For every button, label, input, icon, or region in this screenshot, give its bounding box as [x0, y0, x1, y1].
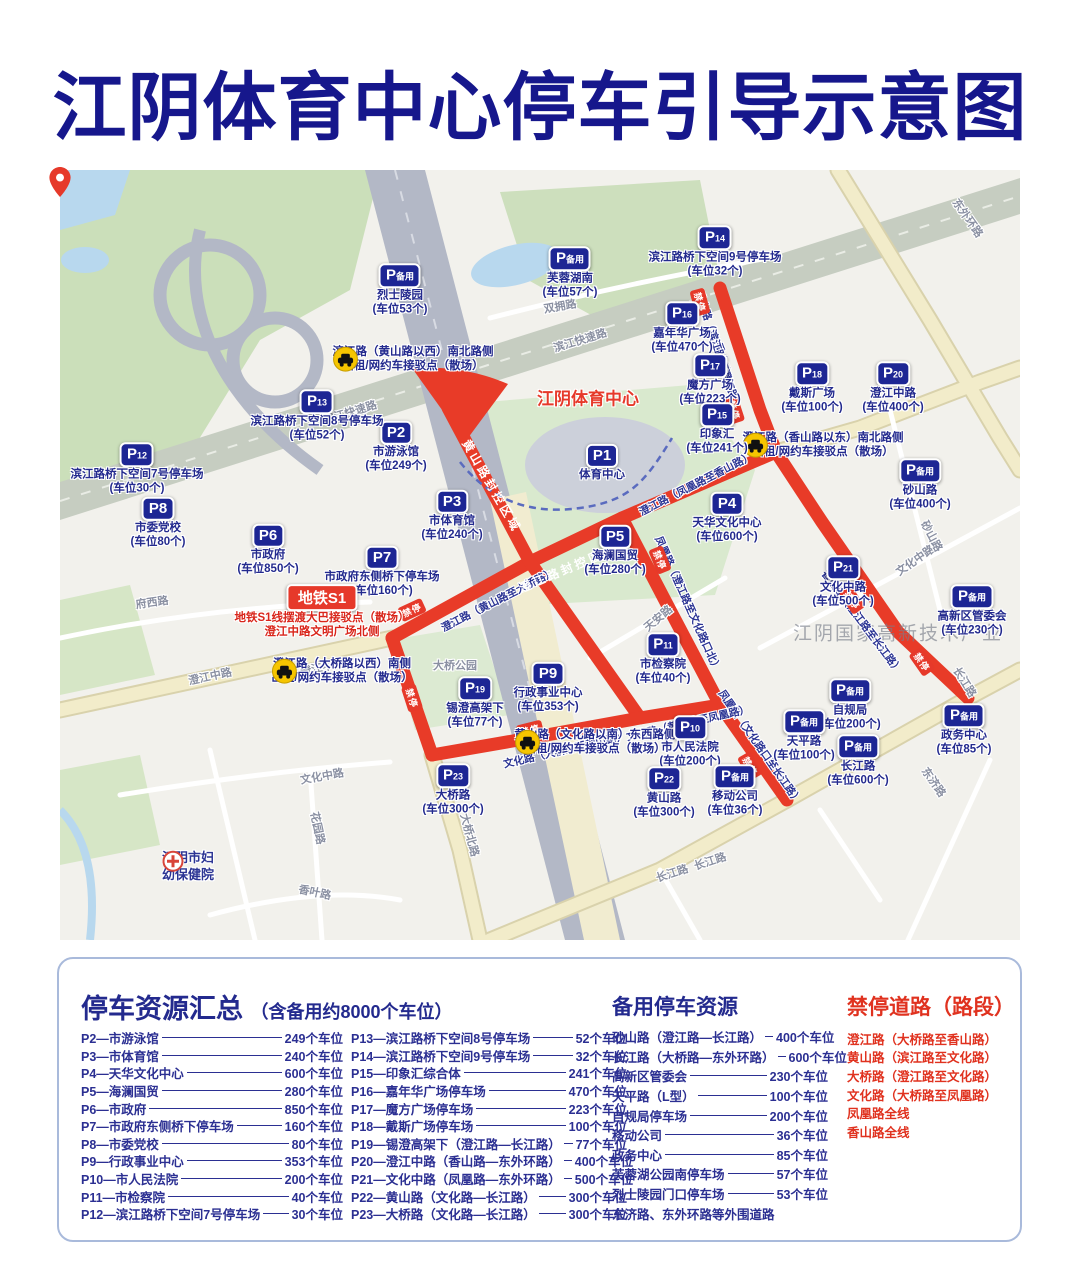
legend-row-label: P18—戴斯广场停车场: [351, 1116, 473, 1135]
parking-capacity: (车位249个): [365, 460, 426, 473]
legend-row-value: 600个车位: [789, 1047, 847, 1066]
p-glyph: P: [307, 392, 317, 409]
leader-line: [263, 1213, 288, 1214]
parking-badge: P备用: [379, 263, 421, 288]
legend-panel: 停车资源汇总 （含备用约8000个车位） 备用停车资源 禁停道路（路段） P2—…: [57, 957, 1022, 1242]
parking-marker-P4: P4天华文化中心(车位600个): [693, 492, 762, 544]
parking-badge: P备用: [943, 703, 985, 728]
taxi-icon: [271, 658, 297, 684]
parking-badge: P22: [647, 766, 681, 791]
parking-marker-P备用-烈士陵园: P备用烈士陵园(车位53个): [373, 263, 428, 316]
legend-row-label: P8—市委党校: [81, 1134, 159, 1153]
parking-badge: P14: [698, 225, 732, 250]
legend-row-value: 280个车位: [285, 1081, 343, 1100]
p-glyph: P: [950, 706, 960, 723]
p-glyph: P: [721, 767, 731, 784]
leader-line: [728, 1193, 774, 1194]
legend-row-label: 天平路（L型）: [612, 1086, 695, 1105]
p-glyph: P: [700, 356, 710, 373]
legend-row-value: 40个车位: [292, 1187, 343, 1206]
parking-name: 芙蓉湖南: [547, 272, 593, 285]
metro-s1-badge: 地铁S1: [287, 584, 357, 611]
parking-marker-P1: P1体育中心: [579, 444, 625, 482]
parking-name: 滨江路桥下空间7号停车场: [71, 468, 204, 481]
parking-capacity: (车位300个): [633, 807, 694, 820]
p-glyph: P: [654, 769, 664, 786]
parking-name: 体育中心: [579, 469, 625, 482]
hospital-cross-icon: [162, 850, 184, 872]
legend-row: 政务中心85个车位: [612, 1145, 828, 1165]
parking-marker-P2: P2市游泳馆(车位249个): [365, 421, 426, 473]
leader-line: [476, 1108, 565, 1109]
parking-badge: P8: [142, 497, 174, 521]
backup-suffix: 13: [317, 397, 327, 407]
leader-line: [564, 1160, 572, 1161]
leader-line: [690, 1075, 767, 1076]
page-title: 江阴体育中心停车引导示意图: [0, 48, 1080, 155]
taxi-point-1: 滨江路（黄山路以西）南北路侧出租/网约车接驳点（散场）: [333, 346, 494, 374]
p-glyph: P: [707, 405, 717, 422]
parking-marker-P18: P18戴斯广场(车位100个): [781, 361, 842, 414]
legend-row-label: P11—市检察院: [81, 1187, 165, 1206]
parking-badge: P备用: [837, 734, 879, 759]
parking-name: 市政府东侧桥下停车场: [325, 571, 440, 584]
leader-line: [162, 1143, 289, 1144]
p-glyph: P: [386, 266, 396, 283]
parking-marker-P20: P20澄江中路(车位400个): [862, 361, 923, 414]
leader-line: [181, 1178, 281, 1179]
parking-name: 戴斯广场: [789, 387, 835, 400]
legend-row-label: 芙蓉湖公园南停车场: [612, 1164, 725, 1183]
legend-row-label: P3—市体育馆: [81, 1046, 159, 1065]
legend-row-label: P17—魔方广场停车场: [351, 1099, 473, 1118]
legend-row: P18—戴斯广场停车场100个车位: [351, 1117, 627, 1135]
no-parking-row: 大桥路（澄江路至文化路）: [847, 1066, 1037, 1085]
legend-row: P21—文化中路（凤凰路—东外环路）500个车位: [351, 1170, 627, 1188]
leader-line: [665, 1154, 774, 1155]
parking-name: 滨江路桥下空间9号停车场: [649, 251, 782, 264]
taxi-point-3: 澄江路（大桥路以西）南侧出租/网约车接驳点（散场）: [271, 658, 412, 686]
p-glyph: P: [556, 249, 566, 266]
parking-capacity: (车位600个): [827, 775, 888, 788]
legend-row: P11—市检察院40个车位: [81, 1187, 343, 1205]
parking-capacity: (车位80个): [131, 536, 186, 549]
parking-name: 澄江中路: [870, 387, 916, 400]
backup-suffix: 20: [893, 369, 903, 379]
legend-row: 长江路（大桥路—东外环路）600个车位: [612, 1047, 828, 1067]
legend-row-label: P15—印象汇综合体: [351, 1063, 461, 1082]
parking-marker-P备用-自规局: P备用自规局(车位200个): [819, 678, 880, 731]
p-glyph: P: [906, 461, 916, 478]
parking-name: 印象汇: [700, 428, 735, 441]
parking-name: 大桥路: [436, 789, 471, 802]
leader-line: [765, 1036, 773, 1037]
leader-line: [698, 1095, 767, 1096]
parking-marker-P19: P19锡澄高架下(车位77个): [446, 676, 504, 729]
leader-line: [162, 1037, 282, 1038]
parking-capacity: (车位32个): [688, 266, 743, 279]
parking-name: 自规局: [833, 704, 868, 717]
parking-name: 砂山路: [903, 484, 938, 497]
parking-badge: P备用: [783, 709, 825, 734]
legend-row: P8—市委党校80个车位: [81, 1135, 343, 1153]
leader-line: [533, 1055, 572, 1056]
backup-suffix: 备用: [846, 686, 864, 696]
legend-row-value: 200个车位: [285, 1169, 343, 1188]
leader-line: [690, 1115, 767, 1116]
parking-badge: P23: [436, 763, 470, 788]
parking-capacity: (车位240个): [421, 529, 482, 542]
parking-badge: P备用: [829, 678, 871, 703]
no-parking-row: 凤凰路全线: [847, 1103, 1037, 1122]
parking-badge: P19: [458, 676, 492, 701]
parking-badge: P7: [366, 546, 398, 570]
leader-line: [162, 1055, 282, 1056]
p-glyph: P: [802, 364, 812, 381]
parking-capacity: (车位52个): [290, 430, 345, 443]
parking-marker-P3: P3市体育馆(车位240个): [421, 490, 482, 542]
legend-row-label: P2—市游泳馆: [81, 1028, 159, 1047]
legend-row-label: 高新区管委会: [612, 1066, 687, 1085]
legend-row-label: P10—市人民法院: [81, 1169, 178, 1188]
parking-badge: P9: [532, 662, 564, 686]
leader-line: [728, 1173, 774, 1174]
no-parking-row: 香山路全线: [847, 1122, 1037, 1141]
leader-line: [237, 1125, 282, 1126]
legend-row: P22—黄山路（文化路—长江路）300个车位: [351, 1187, 627, 1205]
parking-capacity: (车位850个): [237, 563, 298, 576]
parking-capacity: (车位200个): [819, 719, 880, 732]
leader-line: [539, 1213, 566, 1214]
taxi-point-2: 澄江路（香山路以东）南北路侧出租/网约车接驳点（散场）: [743, 432, 904, 460]
legend-row-value: 36个车位: [777, 1125, 828, 1144]
parking-name: 政务中心: [941, 729, 987, 742]
parking-marker-P12: P12滨江路桥下空间7号停车场(车位30个): [71, 442, 204, 495]
parking-badge: P11: [646, 632, 680, 657]
legend-row: 砂山路（澄江路—长江路）400个车位: [612, 1027, 828, 1047]
legend-row-value: 400个车位: [776, 1027, 834, 1046]
legend-row: 烈士陵园门口停车场53个车位: [612, 1184, 828, 1204]
leader-line: [476, 1125, 565, 1126]
leader-line: [187, 1160, 282, 1161]
parking-capacity: (车位470个): [651, 342, 712, 355]
backup-suffix: 16: [682, 309, 692, 319]
parking-badge: P备用: [549, 246, 591, 271]
parking-capacity: (车位300个): [422, 804, 483, 817]
poster: 江阴体育中心停车引导示意图: [0, 0, 1080, 1267]
parking-badge: P3: [436, 490, 468, 514]
legend-row: 高新区管委会230个车位: [612, 1066, 828, 1086]
no-parking-row: 文化路（大桥路至凤凰路）: [847, 1085, 1037, 1104]
backup-suffix: 23: [453, 771, 463, 781]
legend-row-label: P6—市政府: [81, 1099, 146, 1118]
backup-suffix: 备用: [800, 717, 818, 727]
legend-row: P15—印象汇综合体241个车位: [351, 1064, 627, 1082]
taxi-icon: [333, 346, 359, 372]
metro-s1-point: 地铁S1 地铁S1线摆渡大巴接驳点（散场） 澄江中路文明广场北侧: [234, 584, 409, 640]
parking-name: 行政事业中心: [514, 687, 583, 700]
p-glyph: P: [958, 587, 968, 604]
hospital-poi: 江阴市妇 幼保健院: [162, 850, 214, 884]
parking-marker-P备用-长江路: P备用长江路(车位600个): [827, 734, 888, 787]
legend-row: P14—滨江路桥下空间9号停车场32个车位: [351, 1047, 627, 1065]
parking-name: 天华文化中心: [693, 517, 762, 530]
map-canvas: 双拥路东外环路滨江快速路滨江快速路澄江中路澄江中路府西路大桥公园天安路文化中路文…: [60, 170, 1020, 940]
parking-capacity: (车位53个): [373, 304, 428, 317]
parking-name: 黄山路: [647, 792, 682, 805]
legend-row: P19—锡澄高架下（澄江路—长江路）77个车位: [351, 1135, 627, 1153]
leader-line: [464, 1072, 566, 1073]
legend-row-label: 自规局停车场: [612, 1106, 687, 1125]
legend-row-value: 53个车位: [777, 1184, 828, 1203]
metro-s1-note: 地铁S1线摆渡大巴接驳点（散场）: [234, 611, 409, 625]
parking-capacity: (车位36个): [708, 805, 763, 818]
parking-capacity: (车位100个): [781, 402, 842, 415]
parking-capacity: (车位100个): [773, 750, 834, 763]
parking-name: 移动公司: [712, 790, 758, 803]
parking-name: 天平路: [787, 735, 822, 748]
p-glyph: P: [883, 364, 893, 381]
legend-row: P13—滨江路桥下空间8号停车场52个车位: [351, 1029, 627, 1047]
legend-subtitle: （含备用约8000个车位）: [251, 1002, 453, 1022]
parking-name: 市政府: [251, 549, 286, 562]
legend-row-value: 57个车位: [777, 1164, 828, 1183]
leader-line: [168, 1196, 289, 1197]
legend-row: P23—大桥路（文化路—长江路）300个车位: [351, 1205, 627, 1223]
leader-line: [489, 1090, 566, 1091]
legend-row-value: 230个车位: [770, 1066, 828, 1085]
legend-row-label: P12—滨江路桥下空间7号停车场: [81, 1204, 260, 1223]
legend-row-label: P5—海澜国贸: [81, 1081, 159, 1100]
parking-badge: P2: [380, 421, 412, 445]
backup-suffix: 21: [843, 563, 853, 573]
legend-row-label: P14—滨江路桥下空间9号停车场: [351, 1046, 530, 1065]
legend-row-label: P20—澄江中路（香山路—东外环路）: [351, 1151, 561, 1170]
parking-marker-P备用-政务中心: P备用政务中心(车位85个): [937, 703, 992, 756]
parking-capacity: (车位40个): [636, 673, 691, 686]
parking-marker-P23: P23大桥路(车位300个): [422, 763, 483, 816]
p-glyph: P: [836, 681, 846, 698]
legend-row-label: P16—嘉年华广场停车场: [351, 1081, 486, 1100]
parking-badge: P1: [586, 444, 618, 468]
parking-marker-P11: P11市检察院(车位40个): [636, 632, 691, 685]
leader-line: [533, 1037, 572, 1038]
backup-suffix: 备用: [960, 711, 978, 721]
parking-name: 滨江路桥下空间8号停车场: [251, 415, 384, 428]
legend-row-value: 240个车位: [285, 1046, 343, 1065]
legend-title: 停车资源汇总 （含备用约8000个车位）: [81, 987, 453, 1026]
parking-marker-P14: P14滨江路桥下空间9号停车场(车位32个): [649, 225, 782, 278]
parking-badge: P6: [252, 524, 284, 548]
leader-line: [162, 1090, 282, 1091]
legend-row-value: 30个车位: [292, 1204, 343, 1223]
legend-row: 移动公司36个车位: [612, 1125, 828, 1145]
legend-row: 天平路（L型）100个车位: [612, 1086, 828, 1106]
parking-marker-P备用-砂山路: P备用砂山路(车位400个): [889, 458, 950, 511]
backup-suffix: 备用: [566, 254, 584, 264]
parking-badge: P20: [876, 361, 910, 386]
taxi-point-note: 出租/网约车接驳点（散场）: [752, 446, 893, 460]
leader-line: [187, 1072, 282, 1073]
legend-row: 芙蓉湖公园南停车场57个车位: [612, 1164, 828, 1184]
parking-name: 市检察院: [640, 658, 686, 671]
legend-row-value: 200个车位: [770, 1106, 828, 1125]
legend-row: 自规局停车场200个车位: [612, 1105, 828, 1125]
parking-capacity: (车位400个): [862, 402, 923, 415]
no-parking-row: 黄山路（滨江路至文化路）: [847, 1048, 1037, 1067]
metro-s1-location: 澄江中路文明广场北侧: [264, 626, 379, 640]
parking-name: 嘉年华广场: [653, 327, 711, 340]
p-glyph: P: [672, 304, 682, 321]
legend-row-value: 600个车位: [285, 1063, 343, 1082]
no-parking-title: 禁停道路（路段）: [847, 991, 1015, 1021]
legend-row-label: 东济路、东外环路等外围道路: [612, 1204, 775, 1223]
parking-badge: P备用: [951, 584, 993, 609]
taxi-icon: [743, 432, 769, 458]
p-glyph: P: [844, 737, 854, 754]
parking-name: 长江路: [841, 760, 876, 773]
backup-suffix: 备用: [968, 592, 986, 602]
legend-row-label: P13—滨江路桥下空间8号停车场: [351, 1028, 530, 1047]
backup-suffix: 15: [717, 410, 727, 420]
parking-marker-P6: P6市政府(车位850个): [237, 524, 298, 576]
legend-column-left: P2—市游泳馆249个车位P3—市体育馆240个车位P4—天华文化中心600个车…: [81, 1029, 343, 1223]
legend-row-label: P4—天华文化中心: [81, 1063, 184, 1082]
backup-suffix: 备用: [396, 271, 414, 281]
backup-suffix: 22: [664, 774, 674, 784]
parking-marker-P8: P8市委党校(车位80个): [131, 497, 186, 549]
backup-list-title: 备用停车资源: [612, 991, 738, 1021]
parking-name: 锡澄高架下: [446, 702, 504, 715]
backup-suffix: 备用: [854, 742, 872, 752]
backup-suffix: 12: [137, 450, 147, 460]
legend-row-value: 353个车位: [285, 1151, 343, 1170]
leader-line: [564, 1143, 573, 1144]
parking-capacity: (车位85个): [937, 744, 992, 757]
parking-name: 市体育馆: [429, 515, 475, 528]
parking-capacity: (车位400个): [889, 499, 950, 512]
legend-row: P10—市人民法院200个车位: [81, 1170, 343, 1188]
legend-row-value: 85个车位: [777, 1145, 828, 1164]
stadium-label: 江阴体育中心: [537, 385, 639, 410]
legend-row-label: P21—文化中路（凤凰路—东外环路）: [351, 1169, 561, 1188]
location-pin-icon: [49, 167, 71, 197]
parking-marker-P22: P22黄山路(车位300个): [633, 766, 694, 819]
leader-line: [665, 1134, 774, 1135]
legend-row-value: 160个车位: [285, 1116, 343, 1135]
legend-row-label: P22—黄山路（文化路—长江路）: [351, 1187, 536, 1206]
legend-row-label: 烈士陵园门口停车场: [612, 1184, 725, 1203]
legend-row-label: P7—市政府东侧桥下停车场: [81, 1116, 234, 1135]
legend-row: P20—澄江中路（香山路—东外环路）400个车位: [351, 1152, 627, 1170]
legend-row: P17—魔方广场停车场223个车位: [351, 1099, 627, 1117]
backup-suffix: 备用: [916, 466, 934, 476]
parking-marker-P备用-天平路: P备用天平路(车位100个): [773, 709, 834, 762]
legend-column-backup: 砂山路（澄江路—长江路）400个车位长江路（大桥路—东外环路）600个车位高新区…: [612, 1027, 828, 1223]
taxi-icon: [515, 729, 541, 755]
legend-row-label: P9—行政事业中心: [81, 1151, 184, 1170]
parking-capacity: (车位200个): [659, 756, 720, 769]
legend-row-label: 政务中心: [612, 1145, 662, 1164]
taxi-point-note: 出租/网约车接驳点（散场）: [342, 360, 483, 374]
p-glyph: P: [653, 635, 663, 652]
backup-suffix: 19: [475, 684, 485, 694]
parking-markers-layer: P备用烈士陵园(车位53个)P备用芙蓉湖南(车位57个)P14滨江路桥下空间9号…: [60, 170, 1020, 940]
legend-row-label: 长江路（大桥路—东外环路）: [612, 1047, 775, 1066]
legend-row: P7—市政府东侧桥下停车场160个车位: [81, 1117, 343, 1135]
parking-name: 烈士陵园: [377, 289, 423, 302]
legend-row: P5—海澜国贸280个车位: [81, 1082, 343, 1100]
p-glyph: P: [465, 679, 475, 696]
leader-line: [539, 1196, 566, 1197]
legend-row: 东济路、东外环路等外围道路: [612, 1203, 828, 1223]
legend-row: P4—天华文化中心600个车位: [81, 1064, 343, 1082]
legend-row: P9—行政事业中心353个车位: [81, 1152, 343, 1170]
backup-suffix: 14: [715, 233, 725, 243]
legend-column-right: P13—滨江路桥下空间8号停车场52个车位P14—滨江路桥下空间9号停车场32个…: [351, 1029, 627, 1223]
legend-row-label: 移动公司: [612, 1125, 662, 1144]
backup-suffix: 18: [812, 369, 822, 379]
parking-badge: P4: [711, 492, 743, 516]
legend-row-label: P23—大桥路（文化路—长江路）: [351, 1204, 536, 1223]
parking-badge: P18: [795, 361, 829, 386]
legend-row: P6—市政府850个车位: [81, 1099, 343, 1117]
parking-capacity: (车位600个): [696, 531, 757, 544]
legend-row-value: 850个车位: [285, 1099, 343, 1118]
legend-row-label: 砂山路（澄江路—长江路）: [612, 1027, 762, 1046]
legend-column-no-parking: 澄江路（大桥路至香山路）黄山路（滨江路至文化路）大桥路（澄江路至文化路）文化路（…: [847, 1029, 1037, 1141]
no-parking-row: 澄江路（大桥路至香山路）: [847, 1029, 1037, 1048]
legend-row: P3—市体育馆240个车位: [81, 1047, 343, 1065]
taxi-point-note: 出租/网约车接驳点（散场）: [524, 743, 665, 757]
backup-suffix: 11: [663, 640, 673, 650]
road-label: 大桥公园: [433, 657, 477, 673]
leader-line: [778, 1056, 786, 1057]
legend-row-value: 80个车位: [292, 1134, 343, 1153]
parking-marker-P9: P9行政事业中心(车位353个): [514, 662, 583, 714]
taxi-point-4: 黄山路（文化路以南）东西路侧出租/网约车接驳点（散场）: [515, 729, 676, 757]
parking-capacity: (车位353个): [517, 701, 578, 714]
p-glyph: P: [127, 445, 137, 462]
legend-row: P12—滨江路桥下空间7号停车场30个车位: [81, 1205, 343, 1223]
legend-row: P16—嘉年华广场停车场470个车位: [351, 1082, 627, 1100]
p-glyph: P: [705, 228, 715, 245]
p-glyph: P: [790, 712, 800, 729]
leader-line: [564, 1178, 572, 1179]
legend-row-value: 100个车位: [770, 1086, 828, 1105]
parking-name: 市游泳馆: [373, 446, 419, 459]
parking-marker-P备用-芙蓉湖南: P备用芙蓉湖南(车位57个): [543, 246, 598, 299]
leader-line: [149, 1108, 281, 1109]
legend-main-title: 停车资源汇总: [81, 994, 243, 1024]
parking-capacity: (车位77个): [448, 717, 503, 730]
legend-row-label: P19—锡澄高架下（澄江路—长江路）: [351, 1134, 561, 1153]
watermark-text: 江阴国家高新技术产业: [793, 619, 1003, 646]
legend-row: P2—市游泳馆249个车位: [81, 1029, 343, 1047]
p-glyph: P: [443, 766, 453, 783]
parking-name: 市委党校: [135, 522, 181, 535]
parking-badge: P备用: [899, 458, 941, 483]
parking-capacity: (车位30个): [110, 483, 165, 496]
parking-badge: P12: [120, 442, 154, 467]
legend-row-value: 249个车位: [285, 1028, 343, 1047]
